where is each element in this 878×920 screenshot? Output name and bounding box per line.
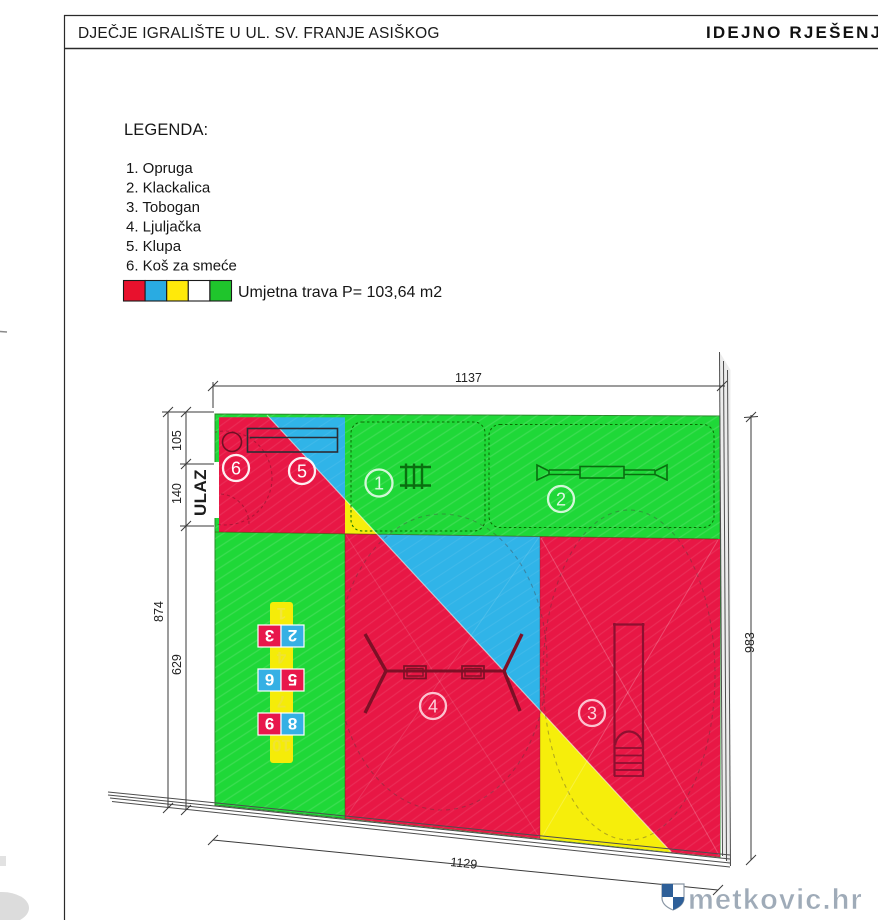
svg-text:1129: 1129 [450, 855, 478, 872]
svg-text:1: 1 [374, 474, 384, 494]
svg-text:7: 7 [277, 692, 286, 711]
svg-text:6: 6 [265, 670, 274, 689]
svg-text:Umjetna trava P= 103,64 m2: Umjetna trava P= 103,64 m2 [238, 284, 442, 301]
svg-text:6: 6 [231, 459, 241, 479]
svg-text:LEGENDA:: LEGENDA: [124, 121, 208, 139]
svg-text:3: 3 [265, 626, 274, 645]
svg-text:1137: 1137 [455, 371, 482, 385]
svg-text:DJEČJE IGRALIŠTE U UL. SV. FRA: DJEČJE IGRALIŠTE U UL. SV. FRANJE ASIŠKO… [78, 25, 440, 42]
svg-text:140: 140 [170, 483, 184, 504]
svg-text:2: 2 [556, 490, 566, 510]
svg-text:ULAZ: ULAZ [191, 469, 210, 516]
svg-text:4. Ljuljačka: 4. Ljuljačka [126, 219, 202, 236]
svg-text:874: 874 [152, 601, 166, 622]
svg-text:3. Tobogan: 3. Tobogan [126, 199, 200, 216]
svg-text:IDEJNO RJEŠENJE: IDEJNO RJEŠENJE [706, 23, 878, 42]
svg-text:8: 8 [288, 714, 297, 733]
svg-text:5. Klupa: 5. Klupa [126, 238, 182, 255]
svg-text:4: 4 [428, 697, 438, 717]
svg-text:10: 10 [272, 736, 291, 755]
svg-text:6. Koš za smeće: 6. Koš za smeće [126, 258, 237, 275]
svg-text:3: 3 [587, 704, 597, 724]
svg-text:105: 105 [170, 430, 184, 451]
svg-text:629: 629 [170, 654, 184, 675]
svg-text:1: 1 [277, 604, 286, 623]
svg-text:metkovic.hr: metkovic.hr [688, 884, 863, 916]
svg-text:5: 5 [297, 462, 307, 482]
svg-text:4: 4 [276, 648, 286, 667]
svg-text:9: 9 [265, 714, 274, 733]
svg-text:2: 2 [288, 626, 297, 645]
svg-text:1. Opruga: 1. Opruga [126, 160, 193, 177]
svg-text:2. Klackalica: 2. Klackalica [126, 180, 211, 197]
svg-text:5: 5 [288, 670, 297, 689]
svg-text:983: 983 [743, 632, 757, 653]
